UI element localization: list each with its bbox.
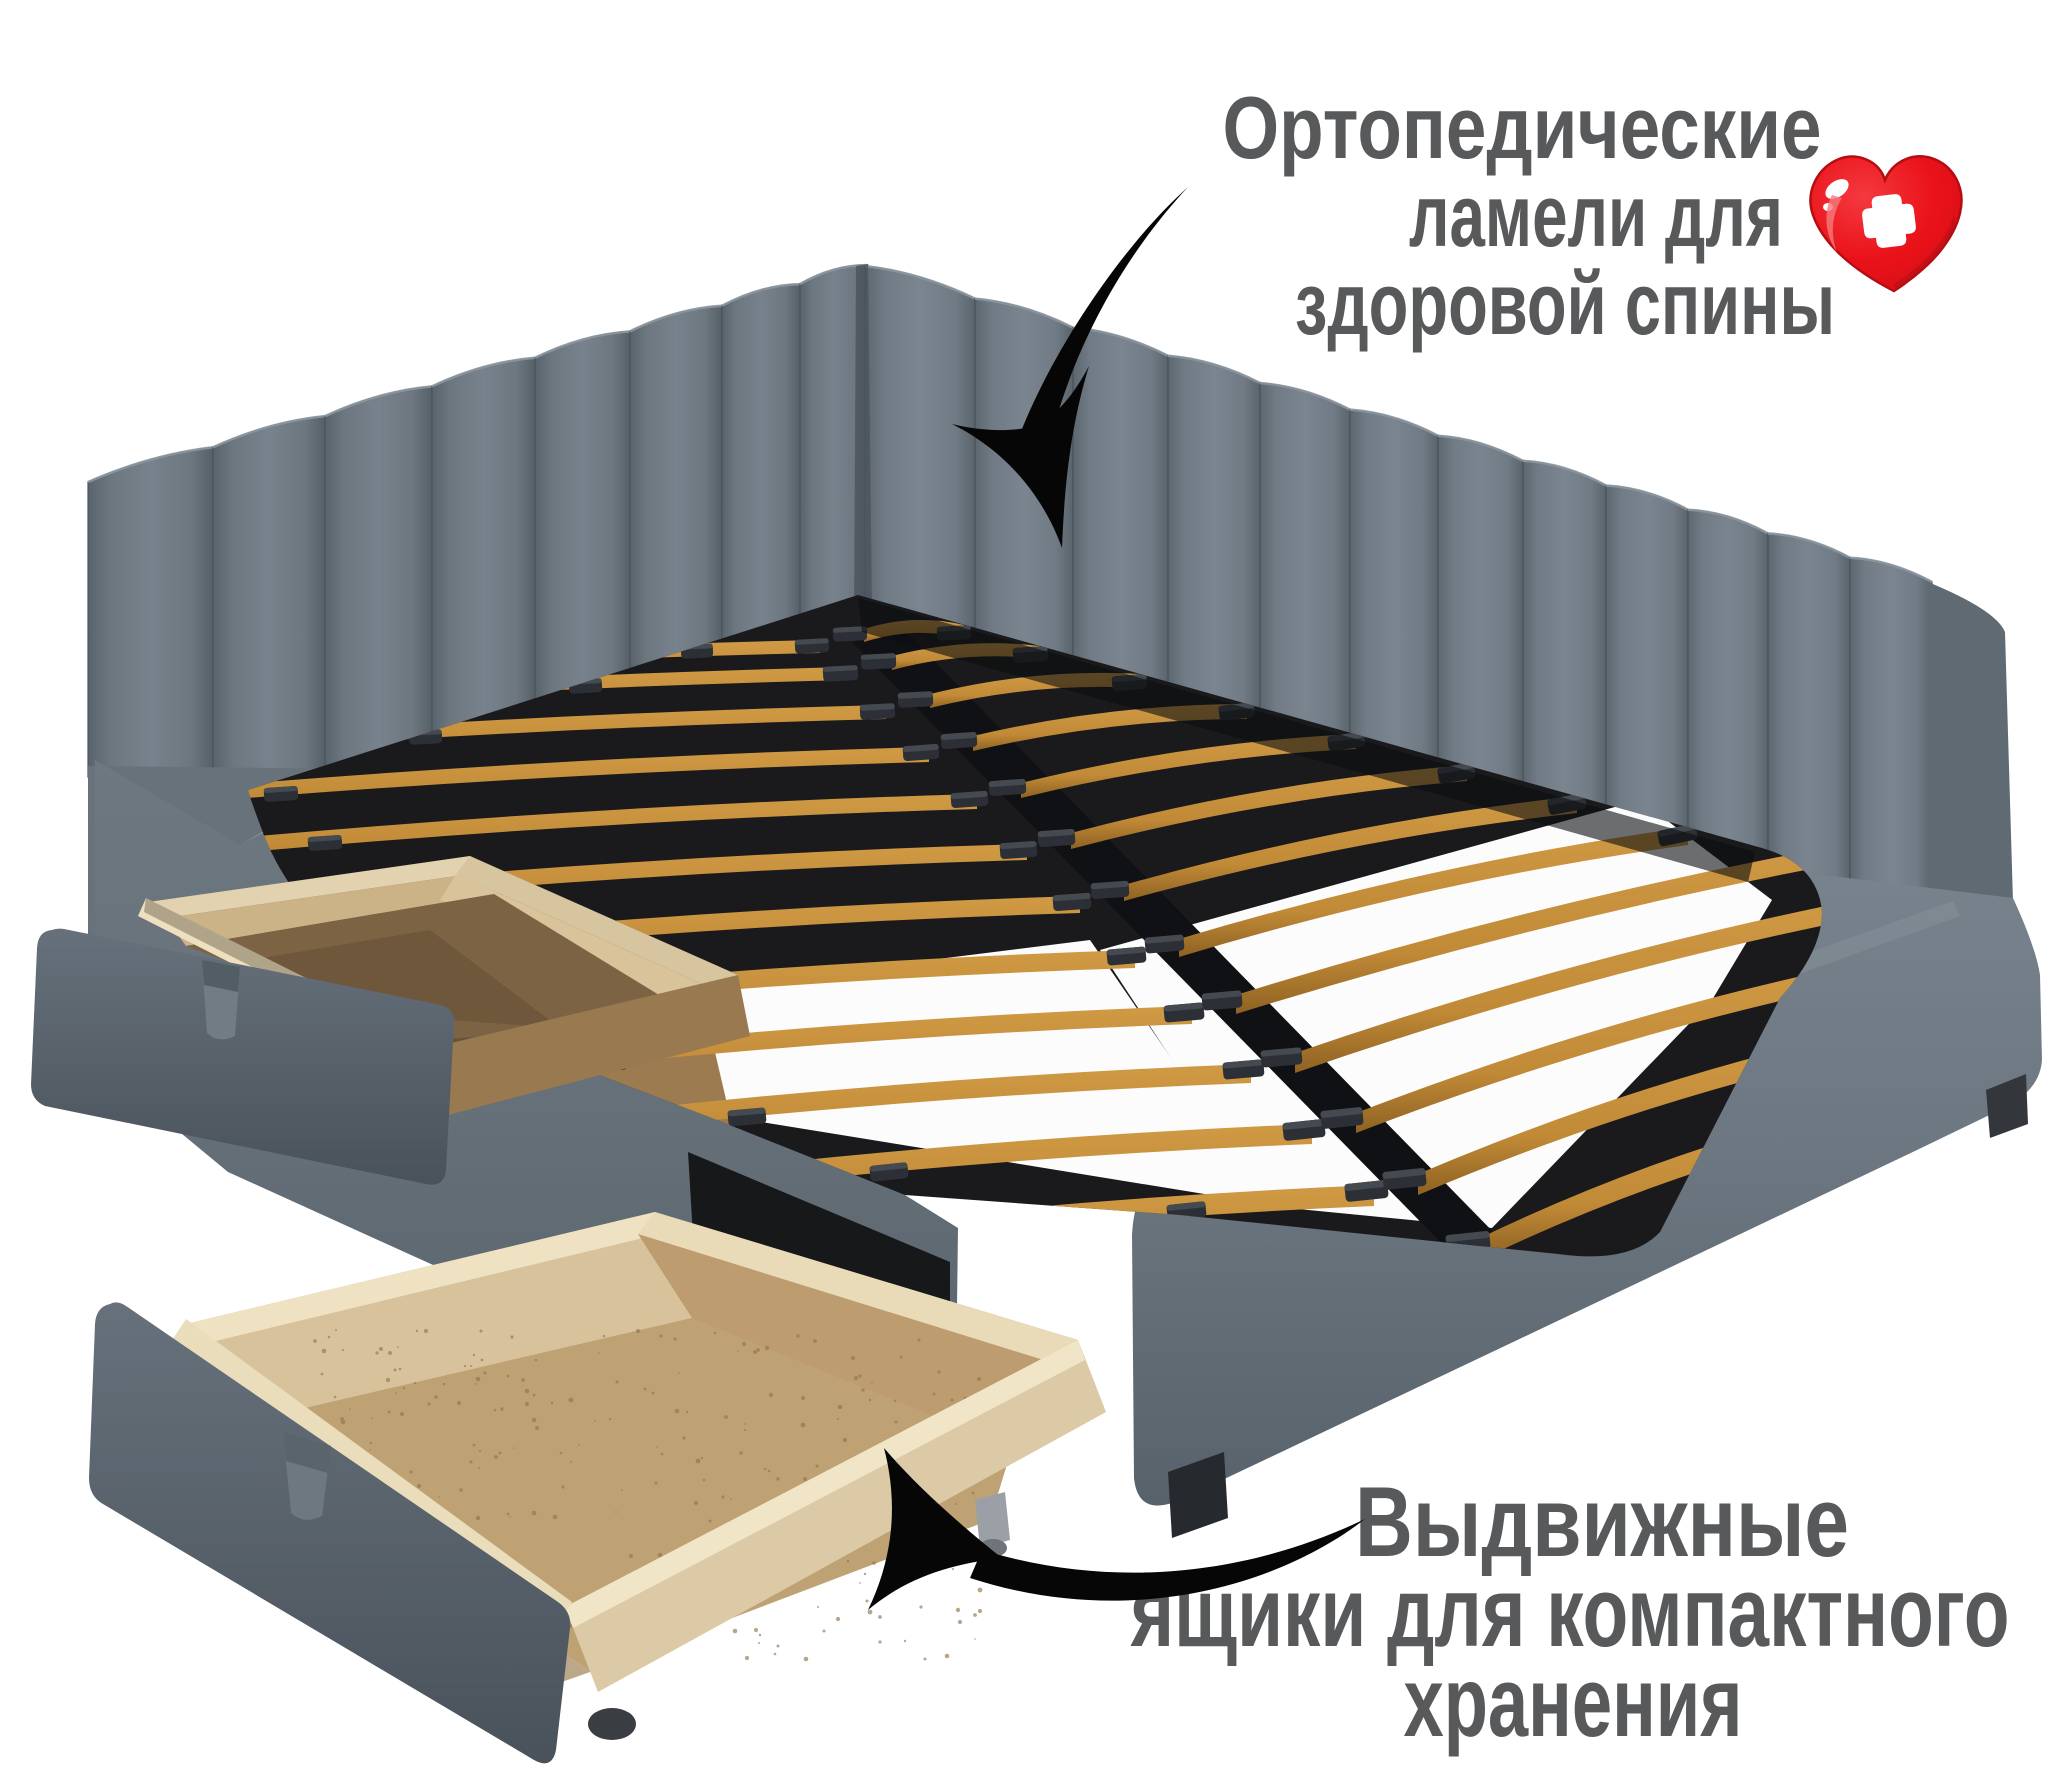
svg-text:здоровой спины: здоровой спины bbox=[1295, 254, 1835, 353]
svg-text:Ортопедические: Ортопедические bbox=[1223, 78, 1822, 177]
svg-text:ламели для: ламели для bbox=[1409, 166, 1783, 265]
svg-text:хранения: хранения bbox=[1404, 1646, 1743, 1757]
